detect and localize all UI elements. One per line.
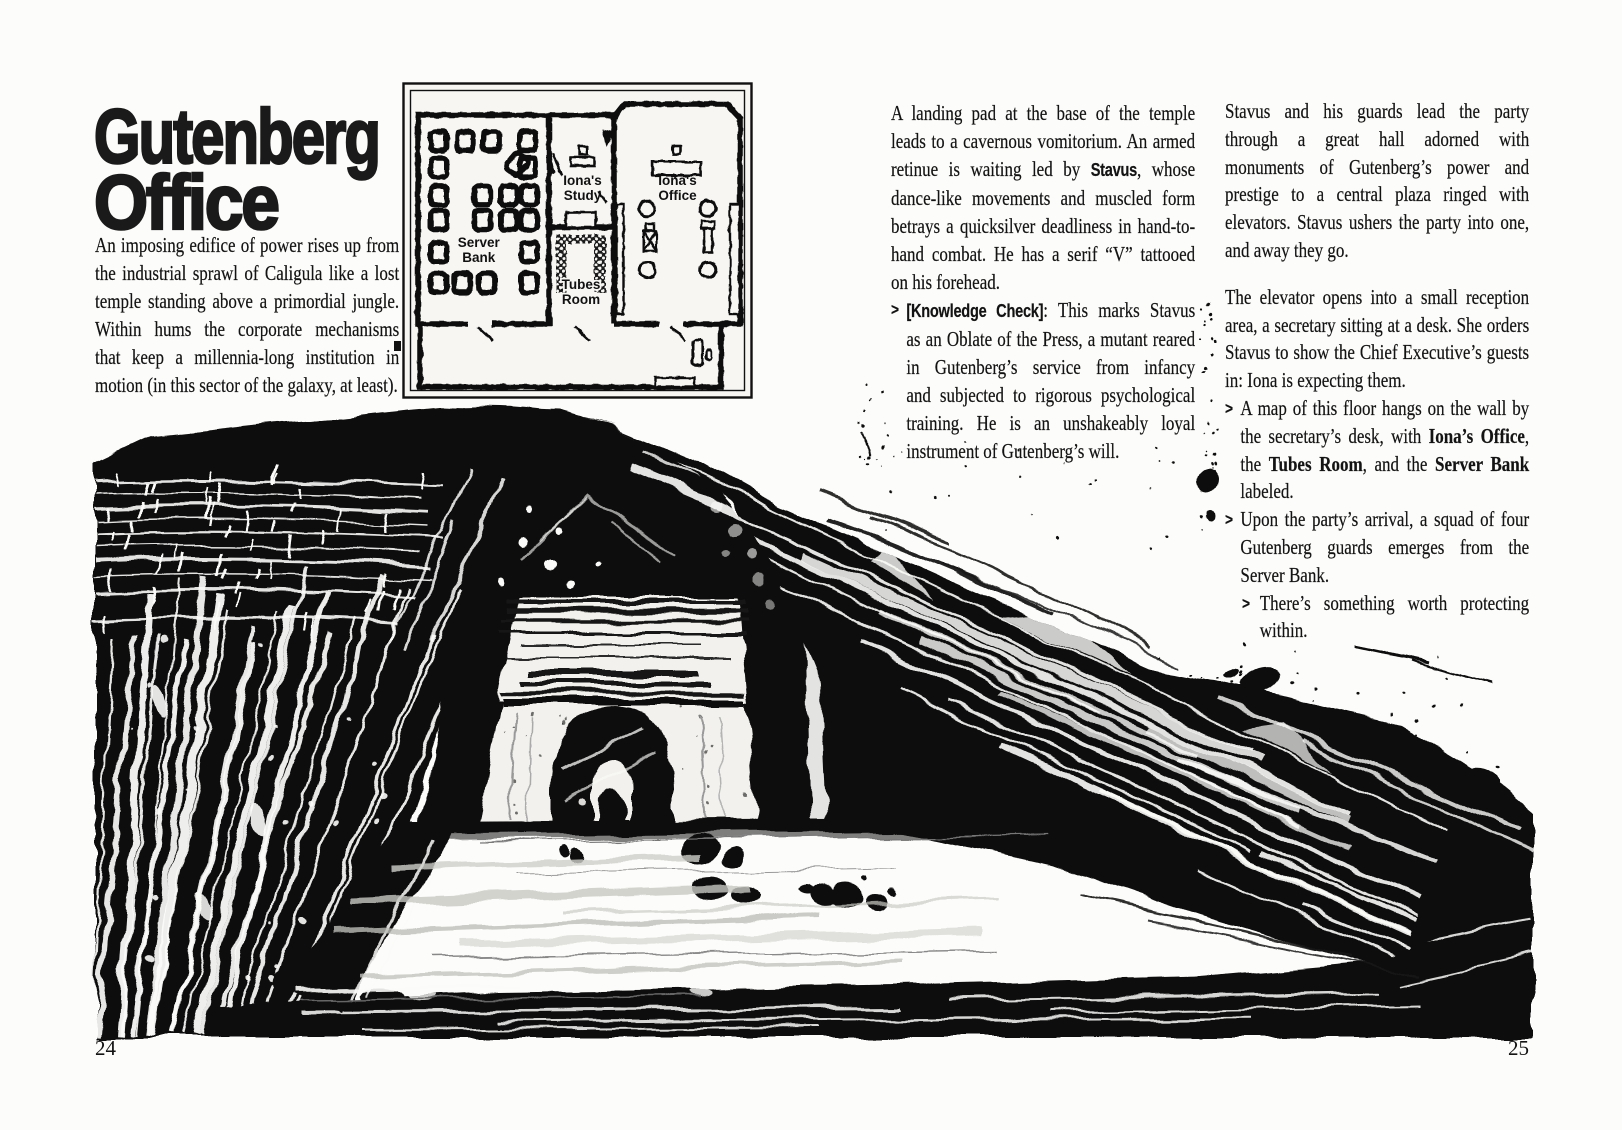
svg-text:Iona's: Iona's: [658, 173, 696, 188]
svg-text:Study: Study: [564, 188, 602, 203]
svg-text:Office: Office: [658, 188, 697, 203]
svg-text:Server: Server: [458, 235, 501, 250]
svg-text:Room: Room: [562, 292, 600, 307]
svg-text:Tubes: Tubes: [562, 277, 601, 292]
svg-text:Bank: Bank: [462, 250, 496, 265]
svg-text:Iona's: Iona's: [563, 173, 601, 188]
